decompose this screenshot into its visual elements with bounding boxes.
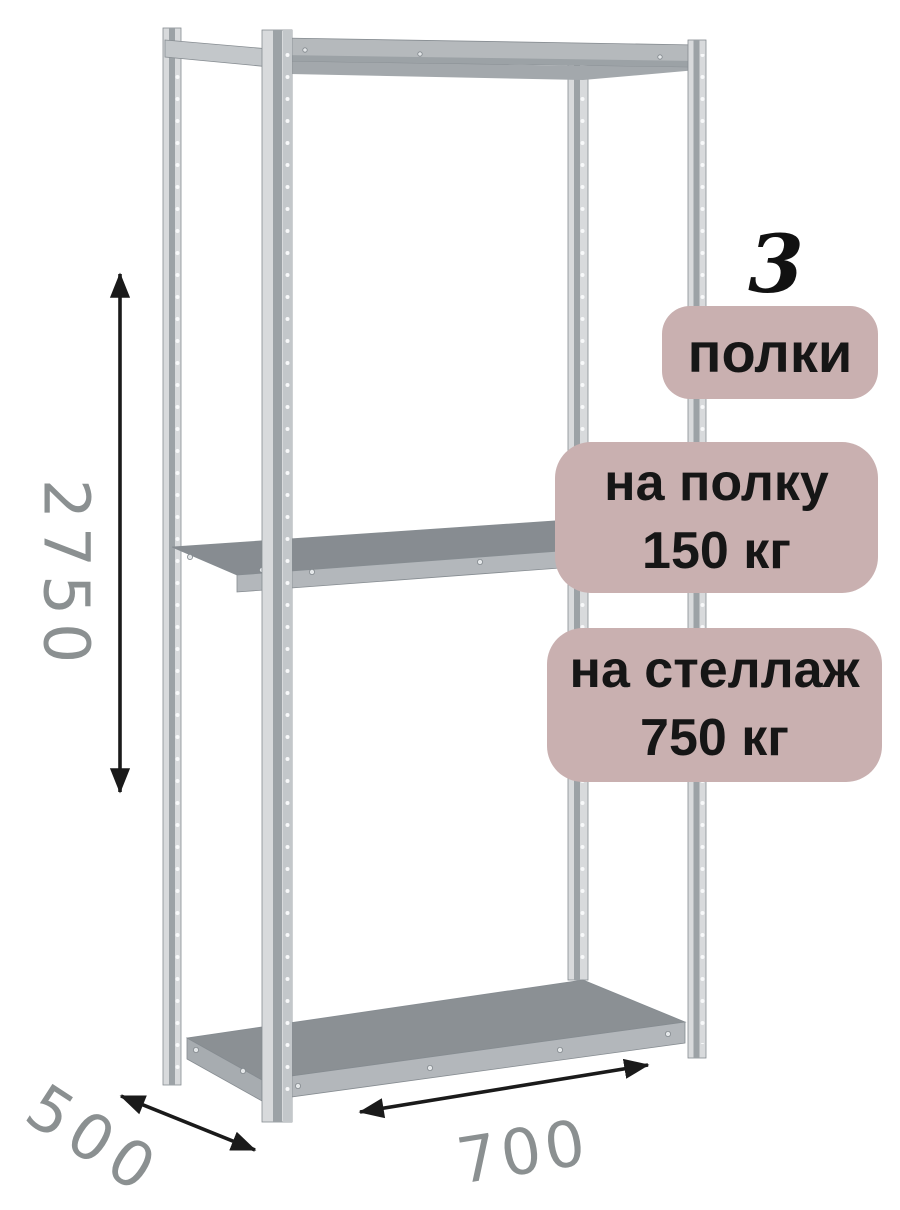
shelf-count-badge: полки [662,306,878,399]
top-shelf [165,38,697,80]
shelving-rack-illustration [0,0,900,1200]
middle-shelf [172,520,614,592]
per-shelf-load-line1: на полку [604,450,829,518]
front-left-post [262,30,292,1122]
per-rack-load-line1: на стеллаж [570,637,860,705]
per-rack-load-line2: 750 кг [640,705,789,773]
per-shelf-load-line2: 150 кг [642,518,791,586]
per-rack-load-badge: на стеллаж 750 кг [547,628,882,782]
product-image: 2750 500 700 3 полки на полку 150 кг на … [0,0,900,1200]
back-left-post [163,28,181,1085]
shelf-count-label: полки [688,320,853,385]
per-shelf-load-badge: на полку 150 кг [555,442,878,593]
height-dimension-label: 2750 [30,479,103,671]
shelf-count-number: 3 [748,217,804,311]
